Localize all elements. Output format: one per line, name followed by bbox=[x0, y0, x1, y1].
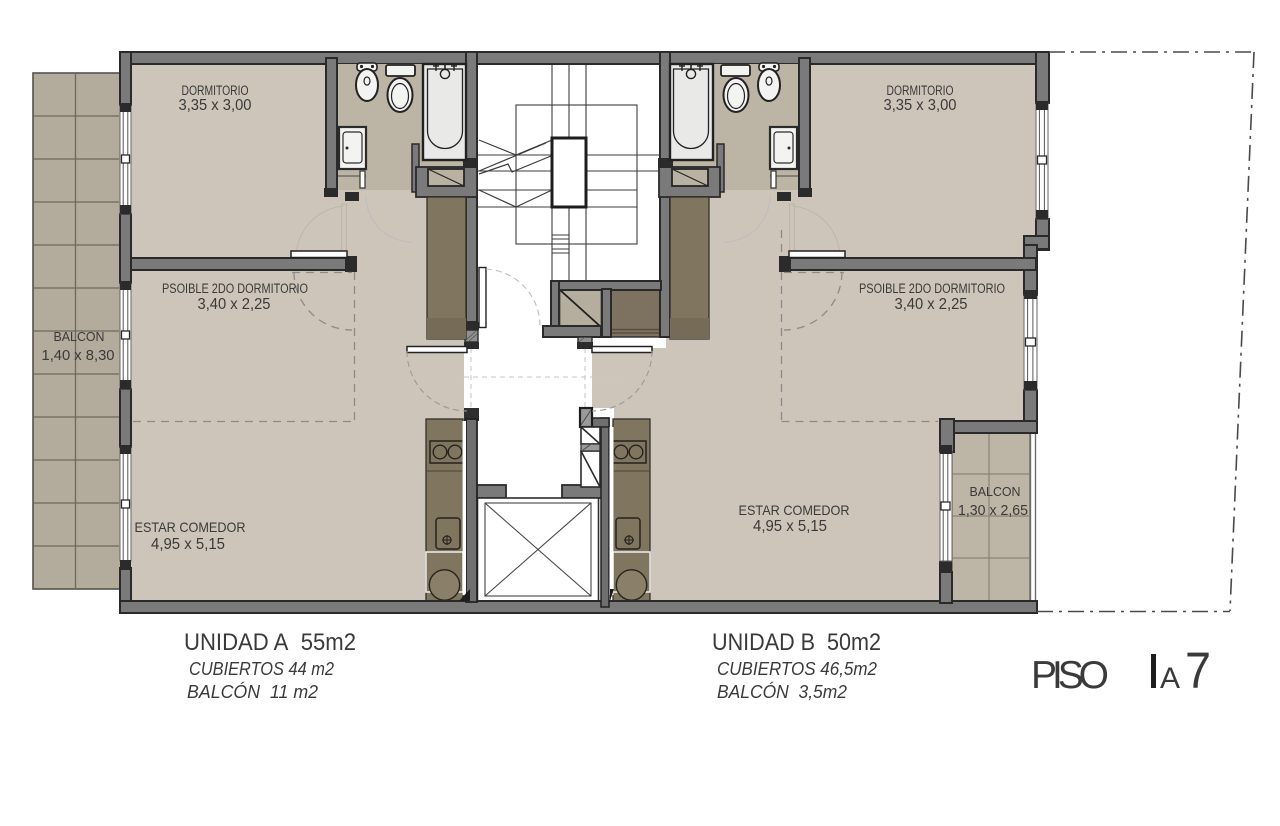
svg-text:UNIDAD A 55m2: UNIDAD A 55m2 bbox=[184, 629, 356, 656]
svg-text:BALCON: BALCON bbox=[54, 330, 105, 344]
svg-text:ESTAR COMEDOR: ESTAR COMEDOR bbox=[739, 502, 850, 518]
svg-text:ESTAR COMEDOR: ESTAR COMEDOR bbox=[135, 519, 246, 535]
svg-text:DORMITORIO: DORMITORIO bbox=[182, 83, 249, 98]
svg-text:3,35 x 3,00: 3,35 x 3,00 bbox=[179, 97, 252, 114]
svg-text:BALCON: BALCON bbox=[970, 485, 1021, 499]
svg-text:3,40 x 2,25: 3,40 x 2,25 bbox=[895, 296, 968, 313]
svg-text:1,30 x 2,65: 1,30 x 2,65 bbox=[958, 503, 1028, 519]
svg-text:4,95 x 5,15: 4,95 x 5,15 bbox=[753, 518, 827, 535]
svg-text:CUBIERTOS 44 m2: CUBIERTOS 44 m2 bbox=[189, 658, 335, 679]
svg-text:BALCÓN 11 m2: BALCÓN 11 m2 bbox=[187, 681, 319, 702]
svg-text:4,95 x 5,15: 4,95 x 5,15 bbox=[151, 536, 225, 553]
svg-text:1,40 x 8,30: 1,40 x 8,30 bbox=[42, 348, 115, 364]
svg-text:3,35 x 3,00: 3,35 x 3,00 bbox=[884, 97, 957, 114]
svg-text:PSOIBLE 2DO DORMITORIO: PSOIBLE 2DO DORMITORIO bbox=[162, 281, 308, 296]
svg-text:7: 7 bbox=[1185, 642, 1211, 699]
svg-text:3,40 x 2,25: 3,40 x 2,25 bbox=[198, 296, 271, 313]
svg-text:CUBIERTOS 46,5m2: CUBIERTOS 46,5m2 bbox=[717, 658, 878, 679]
svg-text:BALCÓN 3,5m2: BALCÓN 3,5m2 bbox=[717, 681, 848, 702]
svg-text:A: A bbox=[1160, 662, 1180, 695]
svg-text:DORMITORIO: DORMITORIO bbox=[887, 83, 954, 98]
svg-text:UNIDAD B 50m2: UNIDAD B 50m2 bbox=[712, 629, 881, 656]
svg-text:PISO: PISO bbox=[1031, 654, 1109, 697]
svg-text:PSOIBLE 2DO DORMITORIO: PSOIBLE 2DO DORMITORIO bbox=[859, 281, 1005, 296]
